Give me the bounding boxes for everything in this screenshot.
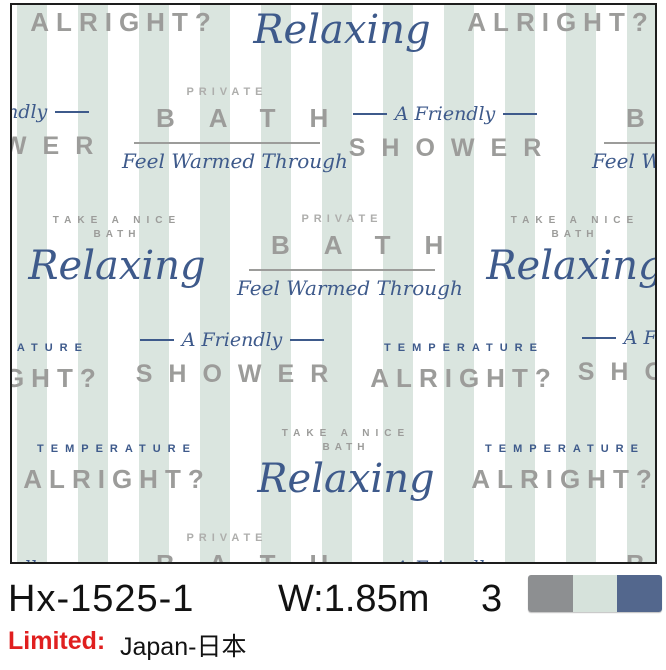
temperature-alright-block: TEMPERATURE ALRIGHT? [10,444,227,492]
a-friendly-text: A Friendly [395,103,496,125]
friendly-shower-block: A Friendly SHOWER [10,557,112,564]
friendly-shower-block: A Friendly SHOWER [330,557,560,564]
product-code: Hx-1525-1 [8,578,194,621]
temperature-text: TEMPERATURE [10,444,227,455]
dash-left [582,337,616,339]
take-a-nice-text: TAKE A NICE [246,429,446,439]
dash-right [55,111,89,113]
relaxing-script-text: Relaxing [242,6,442,54]
relaxing-block: TAKE A NICE BATH Relaxing [475,216,657,290]
color-swatches [528,575,662,612]
alright-text: ALRIGHT? [10,466,227,492]
alright-text: ALRIGHT? [14,9,234,35]
dash-right [290,339,324,341]
product-width: W:1.85m [278,578,429,621]
divider-line [134,142,320,144]
temperature-alright-block: TEMPERATURE ALRIGHT? [451,3,657,35]
colorways-count: 3 [481,578,502,621]
dash-right [503,113,537,115]
a-friendly-row: A Friendly [10,557,112,564]
bath-small-text: BATH [242,3,442,4]
divider-line [604,142,657,144]
take-a-nice-text: TAKE A NICE [475,216,657,226]
a-friendly-text: A Friendly [182,329,283,351]
private-text: PRIVATE [122,87,332,98]
a-friendly-row: A Friendly [10,101,112,123]
alright-text: ALRIGHT? [451,9,657,35]
take-a-nice-text: TAKE A NICE [17,216,217,226]
bath-small-text: BATH [475,230,657,240]
bath-small-text: BATH [17,230,217,240]
swatch-navy [617,575,662,612]
private-bath-block: PRIVATE BATH Feel Warmed Through [592,533,657,564]
private-text: PRIVATE [592,87,657,98]
swatch-gray [528,575,573,612]
feel-warmed-text: Feel Warmed Through [122,148,332,174]
a-friendly-text: A Friendly [10,557,47,564]
private-bath-block: PRIVATE BATH Feel Warmed Through [237,214,447,301]
bath-big-text: BATH [592,105,657,131]
temperature-alright-block: TEMPERATURE ALRIGHT? [455,444,657,492]
temperature-text: TEMPERATURE [10,343,119,354]
dash-left [140,339,174,341]
a-friendly-text: A Friendly [624,327,657,349]
temperature-text: TEMPERATURE [354,343,574,354]
a-friendly-row: A Friendly [117,329,347,351]
divider-line [249,269,435,271]
a-friendly-row: A Friendly [559,327,657,349]
bath-big-text: BATH [122,105,332,131]
friendly-shower-block: A Friendly SHOWER [559,327,657,385]
shower-text: SHOWER [10,133,112,159]
a-friendly-row: A Friendly [330,557,560,564]
temperature-alright-block: TEMPERATURE ALRIGHT? [14,3,234,35]
temperature-text: TEMPERATURE [455,444,657,455]
private-text: PRIVATE [592,533,657,544]
friendly-shower-block: A Friendly SHOWER [117,329,347,387]
shower-text: SHOWER [559,359,657,385]
wallpaper-pattern-swatch: TEMPERATURE ALRIGHT? TAKE A NICE BATH Re… [10,3,657,564]
relaxing-block: TAKE A NICE BATH Relaxing [242,3,442,54]
swatch-mint [573,575,618,612]
a-friendly-text: A Friendly [395,557,496,564]
shower-text: SHOWER [117,361,347,387]
alright-text: ALRIGHT? [10,365,119,391]
private-bath-block: PRIVATE BATH Feel Warmed Through [122,533,332,564]
private-text: PRIVATE [122,533,332,544]
private-bath-block: PRIVATE BATH Feel Warmed Through [122,87,332,174]
relaxing-script-text: Relaxing [246,455,446,503]
limited-label: Limited: [8,627,105,656]
bath-big-text: BATH [237,232,447,258]
relaxing-block: TAKE A NICE BATH Relaxing [246,429,446,503]
feel-warmed-text: Feel Warmed Through [592,148,657,174]
relaxing-script-text: Relaxing [475,242,657,290]
limited-region: Japan-日本 [120,627,246,663]
private-text: PRIVATE [237,214,447,225]
alright-text: ALRIGHT? [354,365,574,391]
temperature-alright-block: TEMPERATURE ALRIGHT? [354,343,574,391]
feel-warmed-text: Feel Warmed Through [237,275,447,301]
alright-text: ALRIGHT? [455,466,657,492]
dash-left [353,113,387,115]
bath-big-text: BATH [592,551,657,564]
pattern-layer: TEMPERATURE ALRIGHT? TAKE A NICE BATH Re… [12,5,655,562]
a-friendly-text: A Friendly [10,101,47,123]
product-card: TEMPERATURE ALRIGHT? TAKE A NICE BATH Re… [0,0,666,670]
bath-small-text: BATH [246,443,446,453]
a-friendly-row: A Friendly [330,103,560,125]
shower-text: SHOWER [330,135,560,161]
relaxing-block: TAKE A NICE BATH Relaxing [17,216,217,290]
relaxing-script-text: Relaxing [17,242,217,290]
private-bath-block: PRIVATE BATH Feel Warmed Through [592,87,657,174]
bath-big-text: BATH [122,551,332,564]
friendly-shower-block: A Friendly SHOWER [330,103,560,161]
friendly-shower-block: A Friendly SHOWER [10,101,112,159]
temperature-alright-block: TEMPERATURE ALRIGHT? [10,343,119,391]
